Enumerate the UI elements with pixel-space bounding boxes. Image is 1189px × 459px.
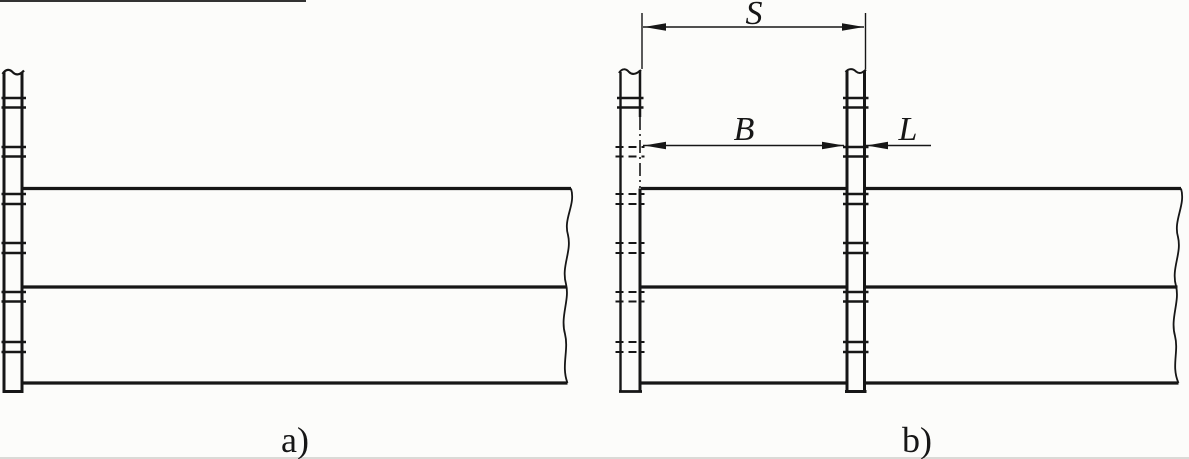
rail-a-top-break bbox=[3, 70, 25, 75]
dim-s-label: S bbox=[746, 0, 763, 32]
dim-l-label: L bbox=[898, 111, 918, 148]
figure-b: S B L b) bbox=[616, 0, 1183, 459]
dim-b-arrow-right bbox=[822, 142, 844, 150]
figure-b-caption: b) bbox=[902, 420, 932, 459]
comb-b-top-break bbox=[846, 69, 867, 73]
comb-rail-b bbox=[616, 69, 645, 392]
comb-rail-a bbox=[2, 70, 27, 392]
rail-b-top-break bbox=[619, 69, 641, 74]
comb-plate-b bbox=[843, 69, 869, 392]
dim-b-arrow-left bbox=[644, 142, 666, 150]
engineering-drawing: a) bbox=[0, 0, 1189, 459]
beams-b bbox=[641, 189, 1181, 384]
dimension-l: L bbox=[866, 111, 931, 149]
figure-a-caption: a) bbox=[281, 420, 309, 459]
dim-s-arrow-left bbox=[644, 23, 666, 31]
figure-a: a) bbox=[2, 70, 573, 459]
dimension-b: B bbox=[643, 111, 844, 149]
beams-a bbox=[21, 189, 571, 384]
dim-l-arrow bbox=[867, 142, 889, 150]
dim-b-label: B bbox=[734, 111, 755, 148]
dimension-s: S bbox=[642, 0, 866, 69]
drawing-canvas: a) bbox=[0, 0, 1189, 459]
dim-s-arrow-right bbox=[842, 23, 864, 31]
